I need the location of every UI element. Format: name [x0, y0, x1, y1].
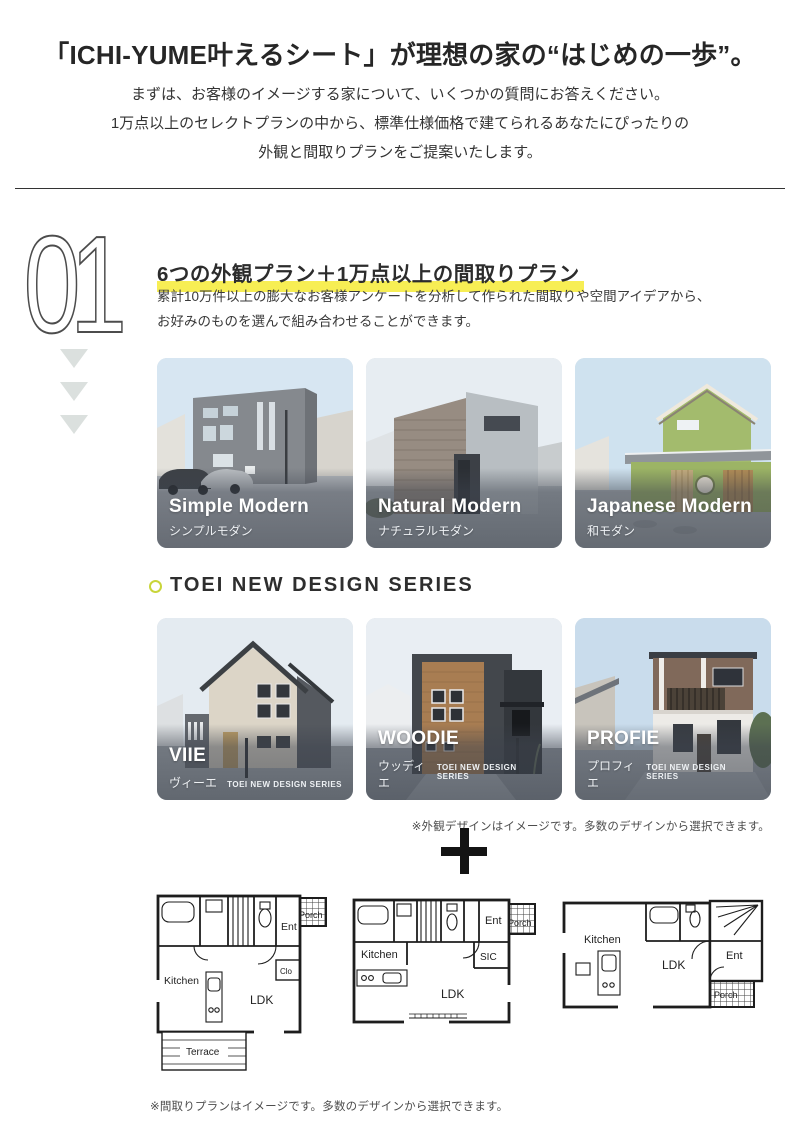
section-number-text: 01: [24, 228, 123, 340]
exterior-card-natural-modern: Natural Modern ナチュラルモダン: [366, 358, 562, 548]
intro-line-3: 外観と間取りプランをご提案いたします。: [0, 138, 800, 167]
series-card-profie: PROFIE プロフィエ TOEI NEW DESIGN SERIES: [575, 618, 771, 800]
plan1-ldk-label: LDK: [250, 993, 273, 1007]
exterior-card-simple-modern: Simple Modern シンプルモダン: [157, 358, 353, 548]
card-label: WOODIE ウッディエ TOEI NEW DESIGN SERIES: [366, 724, 562, 800]
floorplan-note: ※間取りプランはイメージです。多数のデザインから選択できます。: [150, 1098, 508, 1114]
plan1-clo-label: Clo: [280, 967, 293, 976]
plan2-sic-label: SIC: [480, 952, 497, 963]
card-series-tag: TOEI NEW DESIGN SERIES: [227, 780, 342, 789]
plan3-kitchen-label: Kitchen: [584, 934, 621, 946]
card-title-en: PROFIE: [587, 728, 760, 751]
down-triangle-icon: [60, 415, 88, 434]
card-title-en: Simple Modern: [169, 496, 342, 519]
intro-line-1: まずは、お客様のイメージする家について、いくつかの質問にお答えください。: [0, 80, 800, 109]
section-body-line-2: お好みのものを選んで組み合わせることができます。: [157, 309, 710, 334]
series-heading-text: TOEI NEW DESIGN SERIES: [170, 574, 474, 597]
landing-page: 「ICHI-YUME叶えるシート」が理想の家の“はじめの一歩”。 まずは、お客様…: [0, 0, 800, 1127]
plan3-ent-label: Ent: [726, 950, 743, 962]
plus-icon: [441, 828, 487, 874]
card-title-en: Natural Modern: [378, 496, 551, 519]
page-title: 「ICHI-YUME叶えるシート」が理想の家の“はじめの一歩”。: [0, 35, 800, 72]
plan1-kitchen-label: Kitchen: [164, 975, 199, 987]
plan2-kitchen-label: Kitchen: [361, 949, 398, 961]
plan2-ent-label: Ent: [485, 915, 502, 927]
card-subtitle-ja: ヴィーエ: [169, 774, 217, 791]
section-number: 01: [20, 228, 125, 340]
exterior-card-japanese-modern: Japanese Modern 和モダン: [575, 358, 771, 548]
card-subtitle-ja: シンプルモダン: [169, 522, 342, 539]
plan3-porch-label: Porch: [714, 990, 738, 1000]
card-subtitle-ja: プロフィエ: [587, 757, 646, 791]
card-subtitle-row: プロフィエ TOEI NEW DESIGN SERIES: [587, 754, 760, 791]
down-triangle-icon: [60, 349, 88, 368]
card-title-en: WOODIE: [378, 728, 551, 751]
card-subtitle-row: ウッディエ TOEI NEW DESIGN SERIES: [378, 754, 551, 791]
series-card-woodie: WOODIE ウッディエ TOEI NEW DESIGN SERIES: [366, 618, 562, 800]
card-subtitle-ja: ウッディエ: [378, 757, 437, 791]
bullet-ring-icon: [149, 580, 162, 593]
card-title-en: VIIE: [169, 745, 342, 768]
intro-paragraph: まずは、お客様のイメージする家について、いくつかの質問にお答えください。 1万点…: [0, 80, 800, 167]
card-label: PROFIE プロフィエ TOEI NEW DESIGN SERIES: [575, 724, 771, 800]
card-label: VIIE ヴィーエ TOEI NEW DESIGN SERIES: [157, 724, 353, 800]
plan2-ldk-label: LDK: [441, 987, 464, 1001]
plan1-terrace-label: Terrace: [186, 1047, 220, 1058]
exterior-plan-cards: Simple Modern シンプルモダン Natural Modern ナ: [157, 358, 771, 548]
section-heading: 6つの外観プラン＋1万点以上の間取りプラン: [157, 257, 584, 287]
card-title-en: Japanese Modern: [587, 496, 760, 519]
plan3-ldk-label: LDK: [662, 958, 685, 972]
card-subtitle-ja: 和モダン: [587, 522, 760, 539]
card-subtitle-ja: ナチュラルモダン: [378, 522, 551, 539]
plan1-ent-label: Ent: [281, 921, 297, 933]
card-label: Natural Modern ナチュラルモダン: [366, 468, 562, 548]
series-heading: TOEI NEW DESIGN SERIES: [149, 574, 474, 597]
plan2-porch-label: Porch: [508, 918, 532, 928]
section-body-line-1: 累計10万件以上の膨大なお客様アンケートを分析して作られた間取りや空間アイデアか…: [157, 284, 710, 309]
down-triangle-icon: [60, 382, 88, 401]
series-card-viie: VIIE ヴィーエ TOEI NEW DESIGN SERIES: [157, 618, 353, 800]
card-label: Japanese Modern 和モダン: [575, 468, 771, 548]
card-label: Simple Modern シンプルモダン: [157, 468, 353, 548]
intro-line-2: 1万点以上のセレクトプランの中から、標準仕様価格で建てられるあなたにぴったりの: [0, 109, 800, 138]
card-series-tag: TOEI NEW DESIGN SERIES: [646, 763, 760, 781]
plan1-porch-label: Porch: [299, 910, 323, 920]
series-plan-cards: VIIE ヴィーエ TOEI NEW DESIGN SERIES: [157, 618, 771, 800]
section-body: 累計10万件以上の膨大なお客様アンケートを分析して作られた間取りや空間アイデアか…: [157, 284, 710, 334]
floorplan-1: Ent Porch Clo Kitchen LDK Terrace: [150, 884, 332, 1074]
card-subtitle-row: ヴィーエ TOEI NEW DESIGN SERIES: [169, 771, 342, 791]
card-series-tag: TOEI NEW DESIGN SERIES: [437, 763, 551, 781]
floorplan-2: Kitchen Ent Porch SIC LDK: [349, 890, 541, 1030]
floorplan-3: Kitchen LDK Ent Porch: [558, 893, 778, 1015]
section-divider: [15, 188, 785, 189]
